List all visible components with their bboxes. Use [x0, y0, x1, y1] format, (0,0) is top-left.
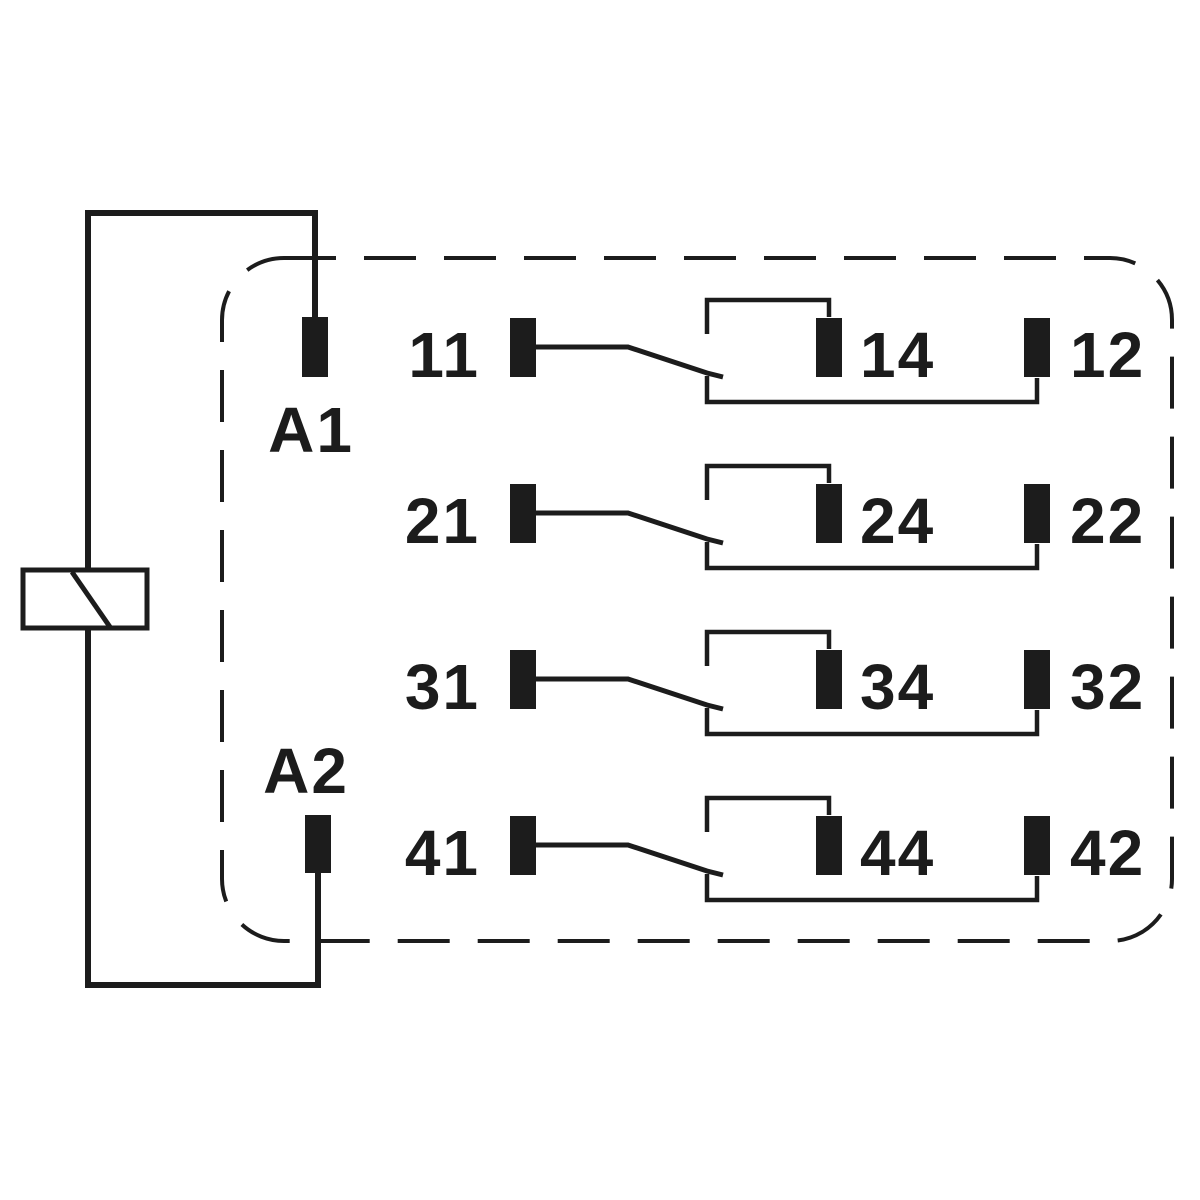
- pole-4-no-label: 44: [860, 817, 935, 889]
- pole-3-no-contact-line: [707, 632, 829, 666]
- pole-3-lever: [536, 679, 723, 709]
- pole-1-no-label: 14: [860, 319, 935, 391]
- pole-4-nc-pin: [1024, 816, 1050, 875]
- pole-3-common-pin: [510, 650, 536, 709]
- pole-4-common-label: 41: [405, 817, 480, 889]
- pole-1-no-pin: [816, 318, 842, 377]
- relay-schematic-page: A1 A2 11 14 12 21 24 22: [0, 0, 1200, 1200]
- terminal-pin-a1: [302, 317, 328, 377]
- terminal-label-a1: A1: [268, 394, 354, 466]
- pole-2-no-label: 24: [860, 485, 935, 557]
- pole-1-no-contact-line: [707, 300, 829, 334]
- pole-3-common-label: 31: [405, 651, 480, 723]
- pole-4-no-pin: [816, 816, 842, 875]
- pole-4-no-contact-line: [707, 798, 829, 832]
- pole-2-no-pin: [816, 484, 842, 543]
- terminal-label-a2: A2: [263, 735, 349, 807]
- pole-1: 11 14 12: [408, 300, 1145, 402]
- pole-2: 21 24 22: [405, 466, 1145, 568]
- pole-4-common-pin: [510, 816, 536, 875]
- pole-4-nc-label: 42: [1070, 817, 1145, 889]
- pole-3-nc-label: 32: [1070, 651, 1145, 723]
- pole-1-nc-label: 12: [1070, 319, 1145, 391]
- coil-symbol: [23, 570, 147, 628]
- pole-2-nc-label: 22: [1070, 485, 1145, 557]
- relay-diagram-canvas: A1 A2 11 14 12 21 24 22: [0, 0, 1200, 1200]
- pole-2-no-contact-line: [707, 466, 829, 500]
- pole-1-nc-pin: [1024, 318, 1050, 377]
- pole-1-common-pin: [510, 318, 536, 377]
- pole-3-no-label: 34: [860, 651, 935, 723]
- pole-4: 41 44 42: [405, 798, 1145, 900]
- pole-2-lever: [536, 513, 723, 543]
- pole-1-lever: [536, 347, 723, 377]
- pole-3-no-pin: [816, 650, 842, 709]
- pole-1-common-label: 11: [408, 319, 480, 391]
- pole-4-lever: [536, 845, 723, 875]
- pole-2-common-pin: [510, 484, 536, 543]
- pole-2-common-label: 21: [405, 485, 480, 557]
- terminal-pin-a2: [305, 815, 331, 873]
- pole-3: 31 34 32: [405, 632, 1145, 734]
- pole-2-nc-pin: [1024, 484, 1050, 543]
- pole-3-nc-pin: [1024, 650, 1050, 709]
